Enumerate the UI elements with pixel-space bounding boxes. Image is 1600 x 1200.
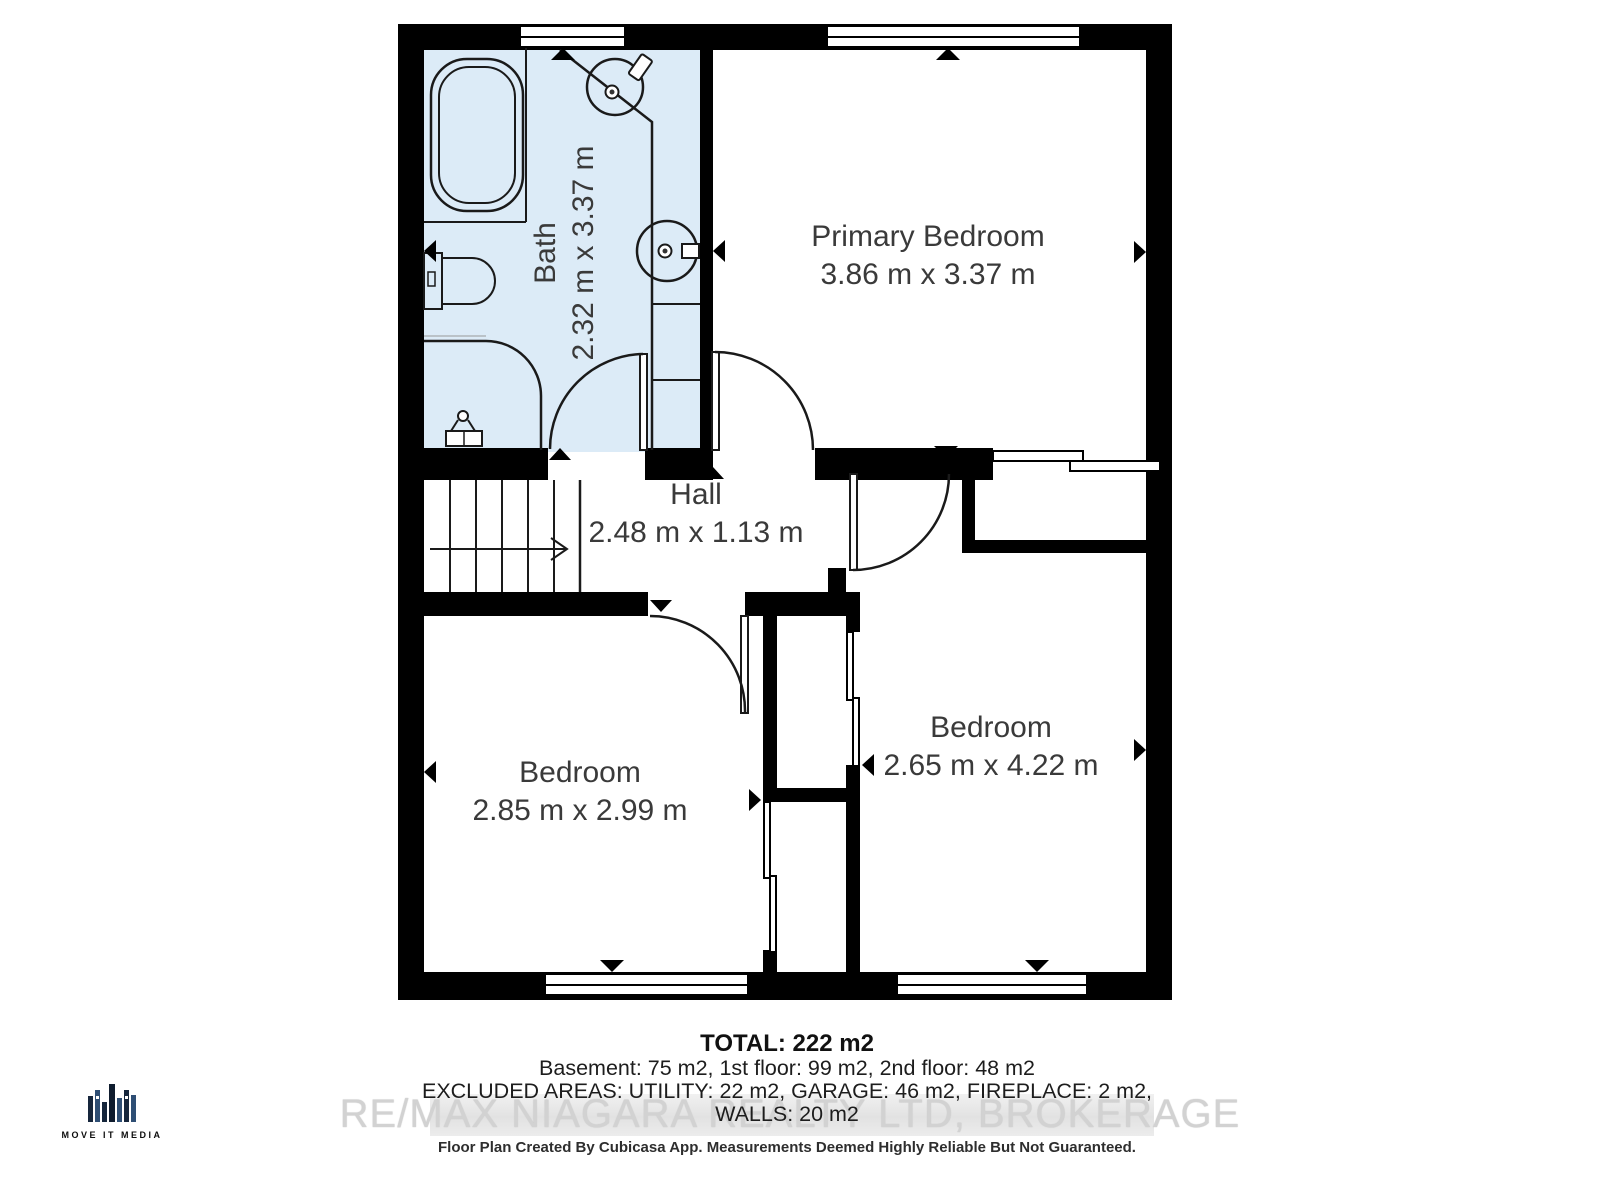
door-arc-icon xyxy=(850,474,949,570)
room-label-bath: Bath 2.32 m x 3.37 m xyxy=(527,145,603,360)
stairs-icon xyxy=(424,480,580,592)
direction-marker-icon xyxy=(424,761,436,783)
room-dims: 2.65 m x 4.22 m xyxy=(883,747,1098,785)
room-dims: 2.48 m x 1.13 m xyxy=(588,514,803,552)
floor-plan-drawing xyxy=(0,0,1600,1200)
window-icon xyxy=(545,974,748,995)
door-arc-icon xyxy=(650,616,748,713)
floor-areas-text: Basement: 75 m2, 1st floor: 99 m2, 2nd f… xyxy=(539,1056,1035,1081)
direction-marker-icon xyxy=(749,789,761,811)
room-name: Bath xyxy=(527,145,565,360)
room-dims: 2.85 m x 2.99 m xyxy=(472,792,687,830)
room-name: Hall xyxy=(588,476,803,514)
room-dims: 2.32 m x 3.37 m xyxy=(565,145,603,360)
sliding-door-icon xyxy=(853,698,859,766)
room-label-hall: Hall 2.48 m x 1.13 m xyxy=(588,476,803,552)
room-name: Bedroom xyxy=(472,754,687,792)
move-it-media-logo-icon xyxy=(86,1082,138,1122)
window-icon xyxy=(827,26,1080,47)
window-icon xyxy=(897,974,1087,995)
direction-marker-icon xyxy=(713,240,725,262)
excluded-areas-text: EXCLUDED AREAS: UTILITY: 22 m2, GARAGE: … xyxy=(422,1079,1152,1104)
direction-marker-icon xyxy=(862,754,874,776)
room-name: Primary Bedroom xyxy=(811,218,1044,256)
direction-marker-icon xyxy=(1025,960,1049,972)
walls-area-text: WALLS: 20 m2 xyxy=(715,1102,859,1127)
room-label-bedroom-left: Bedroom 2.85 m x 2.99 m xyxy=(472,754,687,830)
sliding-door-icon xyxy=(847,632,853,700)
room-label-bedroom-right: Bedroom 2.65 m x 4.22 m xyxy=(883,709,1098,785)
sliding-door-icon xyxy=(770,876,776,952)
sliding-door-icon xyxy=(1070,461,1160,471)
total-area-text: TOTAL: 222 m2 xyxy=(700,1030,874,1058)
direction-marker-icon xyxy=(1134,739,1146,761)
room-dims: 3.86 m x 3.37 m xyxy=(811,256,1044,294)
brand-logo-text: MOVE IT MEDIA xyxy=(52,1130,172,1140)
sliding-door-icon xyxy=(993,451,1083,461)
room-name: Bedroom xyxy=(883,709,1098,747)
door-arc-icon xyxy=(712,352,813,450)
window-icon xyxy=(520,26,625,47)
brand-logo: MOVE IT MEDIA xyxy=(52,1082,172,1140)
direction-marker-icon xyxy=(600,960,624,972)
sliding-door-icon xyxy=(764,802,770,878)
room-label-primary-bedroom: Primary Bedroom 3.86 m x 3.37 m xyxy=(811,218,1044,294)
disclaimer-text: Floor Plan Created By Cubicasa App. Meas… xyxy=(438,1139,1136,1156)
direction-marker-icon xyxy=(1134,241,1146,263)
floor-plan-page: Bath 2.32 m x 3.37 m Primary Bedroom 3.8… xyxy=(0,0,1600,1200)
direction-marker-icon xyxy=(650,600,672,612)
